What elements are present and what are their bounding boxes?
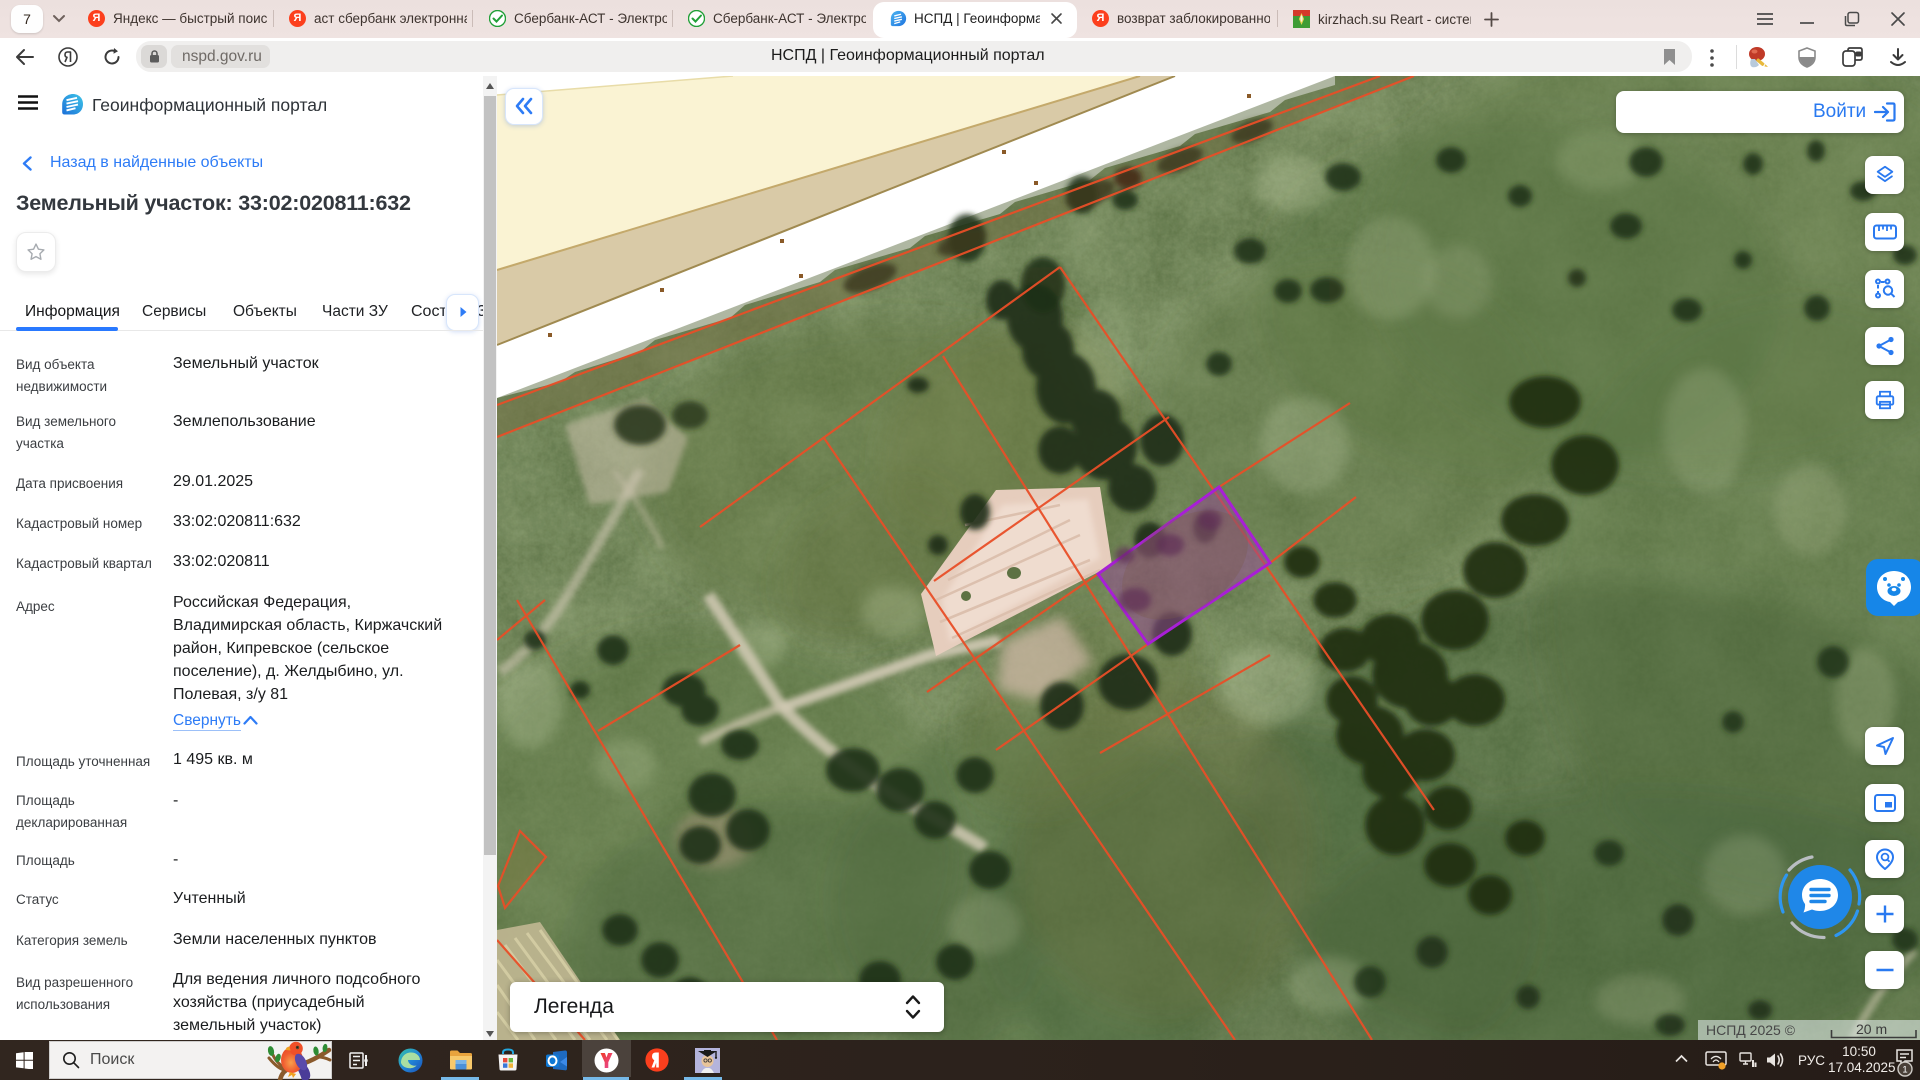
svg-text:1: 1 [1902,1064,1907,1075]
